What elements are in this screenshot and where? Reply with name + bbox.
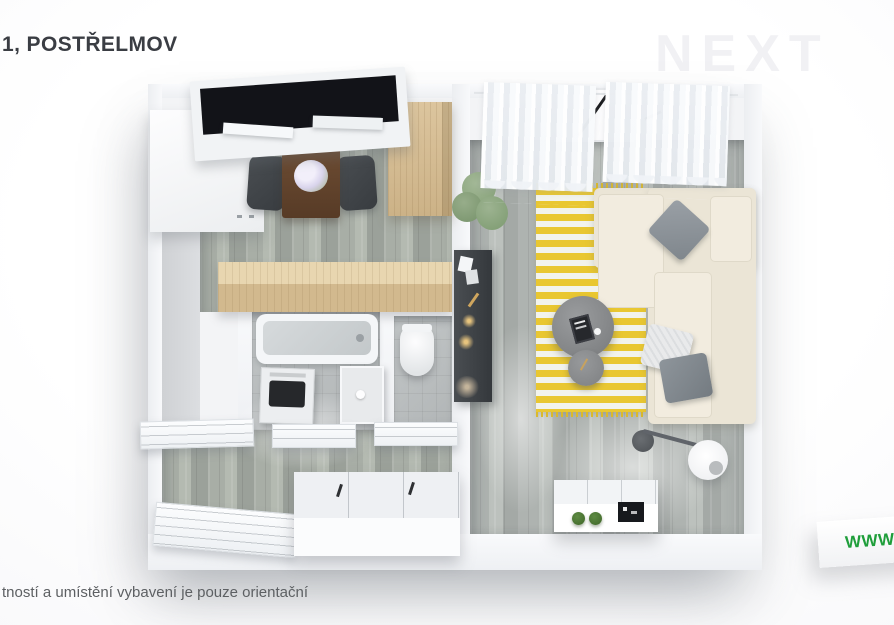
arc-floor-lamp-shade [688,440,728,480]
sink-drain [356,390,365,399]
table-decor-sphere [594,328,601,335]
wardrobe-door-seams [294,472,460,518]
page-title: 1, POSTŘELMOV [2,33,178,57]
sheer-curtain [480,82,596,206]
decor-starburst [462,314,476,328]
website-url: WWW.N [817,510,894,568]
kitchen-side-wall-face [162,214,200,430]
tv-console [454,250,492,402]
decor-sprig [580,358,588,370]
decor-stick [468,293,480,308]
built-in-wardrobe [294,472,460,556]
sideboard-seams [554,480,658,504]
bathtub-drain [356,334,364,342]
real-estate-render: NEXT 1, POSTŘELMOV [0,0,894,625]
wardrobe-handle [237,215,242,218]
decor-grass [454,376,480,398]
sofa-back-cushion [710,196,752,262]
interior-door [272,424,356,448]
book-detail [574,320,585,325]
side-table [568,350,604,386]
curtain-wave-edge [480,180,593,206]
photo-detail [623,507,627,511]
kitchen-counter [218,262,452,312]
washing-machine-door [269,380,306,407]
website-ribbon: WWW.N [818,506,894,576]
photo-detail [631,511,637,514]
bathtub [256,314,378,364]
tall-cabinet-side [442,102,452,216]
dining-chair [336,155,378,212]
wardrobe-handle [249,215,254,218]
shower-sink-unit [340,366,384,424]
interior-door [374,422,458,446]
book-detail [575,325,586,330]
table-book [569,314,595,344]
brand-watermark: NEXT [655,24,830,84]
flower-bouquet [294,160,328,192]
roof-window [189,67,410,162]
washing-machine-panel [270,372,306,377]
window-sash [313,115,383,129]
decor-starburst [458,334,474,350]
framed-photo [618,502,644,522]
floorplan [148,84,762,570]
washing-machine [259,367,315,425]
coffee-table [552,296,614,358]
lamp-shade-hole [709,461,723,475]
disclaimer-text: tností a umístění vybavení je pouze orie… [2,584,308,601]
sideboard [554,480,658,532]
toilet [400,324,434,376]
interior-door [140,419,255,450]
bathtub-basin [263,321,371,355]
curtain-wave-edge [602,174,727,200]
sheer-curtain [602,82,730,200]
potted-plant [589,512,602,525]
ribbon-band: WWW.N [817,510,894,568]
rug-fringe [536,412,646,417]
potted-plant [572,512,585,525]
wall-art-frame [465,269,479,285]
throw-pillow-gray [659,352,714,404]
curtain-fabric [480,82,596,192]
toilet-tank [402,324,432,332]
curtain-fabric [603,82,730,186]
